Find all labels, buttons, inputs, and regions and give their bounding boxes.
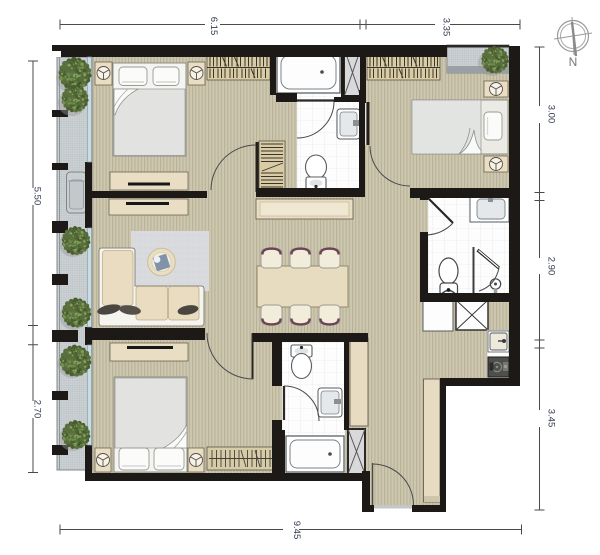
svg-text:3.45: 3.45 (546, 409, 557, 428)
svg-text:N: N (569, 55, 578, 69)
svg-text:2.90: 2.90 (546, 257, 557, 276)
svg-text:6.15: 6.15 (208, 17, 219, 36)
svg-text:3.00: 3.00 (546, 105, 557, 124)
svg-text:2.70: 2.70 (32, 400, 43, 419)
svg-text:9.45: 9.45 (291, 521, 302, 540)
svg-text:5.50: 5.50 (32, 187, 43, 206)
svg-text:3.35: 3.35 (441, 18, 452, 37)
